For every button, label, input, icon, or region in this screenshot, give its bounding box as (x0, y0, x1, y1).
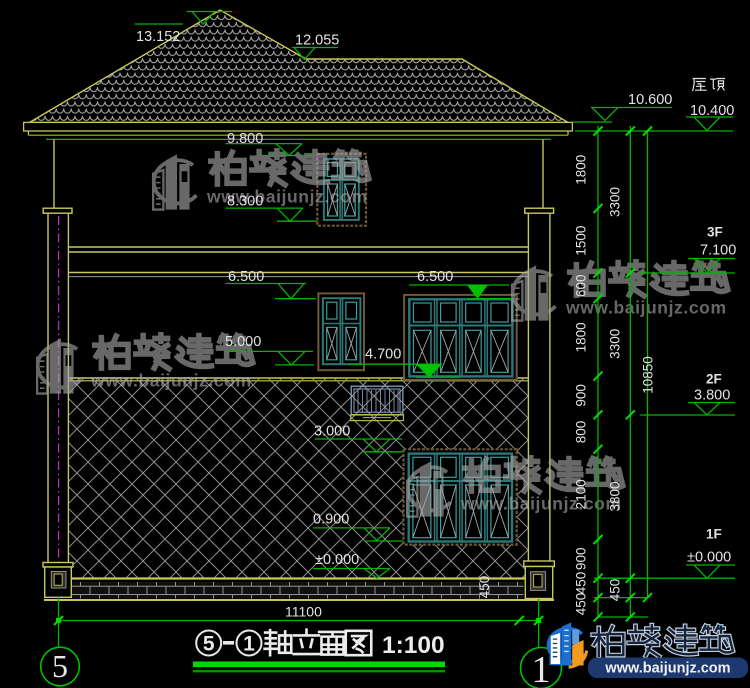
svg-text:www.baijunjz.com: www.baijunjz.com (565, 298, 727, 318)
svg-text:www.baijunjz.com: www.baijunjz.com (90, 371, 252, 391)
svg-text:12.055: 12.055 (295, 33, 339, 49)
svg-text:1: 1 (532, 649, 551, 688)
svg-text:9.800: 9.800 (227, 131, 263, 147)
svg-text:7.100: 7.100 (700, 243, 736, 259)
svg-text:5: 5 (52, 648, 68, 684)
svg-text:450: 450 (574, 572, 589, 595)
svg-text:3F: 3F (707, 225, 723, 240)
svg-text:3.800: 3.800 (694, 388, 730, 404)
svg-text:10.400: 10.400 (690, 103, 734, 119)
svg-text:3300: 3300 (608, 187, 623, 217)
svg-text:10.600: 10.600 (628, 92, 672, 108)
svg-text:3.000: 3.000 (314, 424, 350, 440)
svg-text:450: 450 (477, 576, 492, 599)
svg-text:10850: 10850 (641, 356, 656, 394)
svg-text:450: 450 (574, 593, 589, 616)
svg-text:±0.000: ±0.000 (315, 552, 359, 568)
svg-text:13.152: 13.152 (136, 29, 180, 45)
svg-text:1800: 1800 (574, 322, 589, 352)
svg-text:www.baijunjz.com: www.baijunjz.com (604, 661, 730, 677)
svg-text:900: 900 (574, 548, 589, 571)
svg-text:1F: 1F (706, 527, 722, 542)
svg-text:8.300: 8.300 (227, 194, 263, 210)
svg-text:11100: 11100 (285, 604, 322, 620)
svg-text:900: 900 (574, 384, 589, 407)
svg-text:3800: 3800 (608, 481, 623, 511)
svg-text:5.000: 5.000 (225, 334, 261, 350)
svg-text:±0.000: ±0.000 (687, 550, 731, 566)
svg-text:3300: 3300 (608, 329, 623, 359)
svg-text:2100: 2100 (574, 479, 589, 509)
svg-text:600: 600 (574, 275, 589, 298)
svg-text:1800: 1800 (574, 155, 589, 185)
svg-text:1:100: 1:100 (382, 632, 445, 659)
svg-text:1: 1 (243, 633, 255, 656)
svg-text:1500: 1500 (574, 226, 589, 256)
svg-text:6.500: 6.500 (417, 269, 453, 285)
svg-text:0.900: 0.900 (313, 512, 349, 528)
svg-text:450: 450 (608, 579, 623, 602)
svg-text:800: 800 (574, 421, 589, 444)
svg-text:2F: 2F (706, 372, 722, 387)
svg-text:4.700: 4.700 (365, 347, 401, 363)
svg-text:5: 5 (203, 633, 215, 656)
svg-text:6.500: 6.500 (228, 269, 264, 285)
